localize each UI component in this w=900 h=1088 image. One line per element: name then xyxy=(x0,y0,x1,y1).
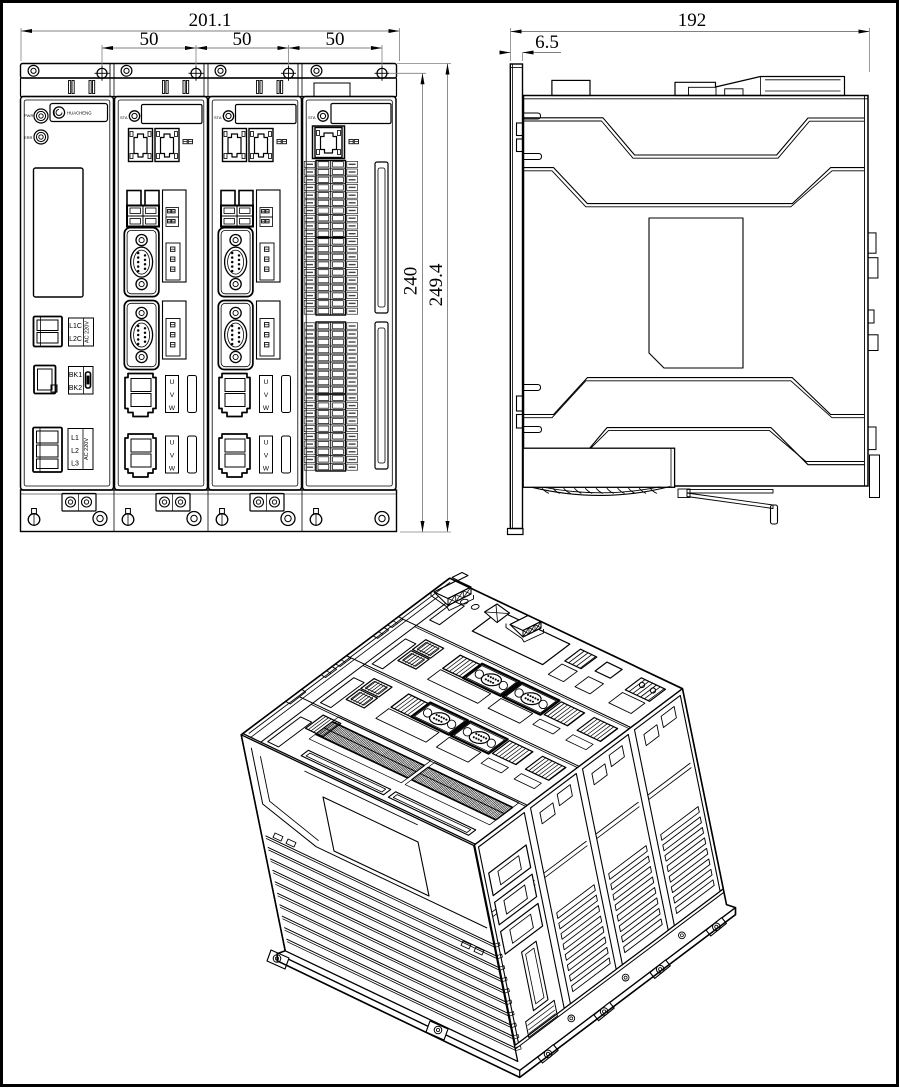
svg-text:W: W xyxy=(169,466,176,473)
svg-text:L1: L1 xyxy=(71,435,79,442)
svg-text:L1C: L1C xyxy=(69,323,82,330)
svg-text:6.5: 6.5 xyxy=(535,32,559,53)
svg-text:STA: STA xyxy=(120,115,128,120)
svg-text:U: U xyxy=(170,379,175,386)
svg-text:201.1: 201.1 xyxy=(189,10,232,31)
svg-text:249.4: 249.4 xyxy=(426,263,447,306)
svg-text:HUACHENG: HUACHENG xyxy=(67,111,92,116)
svg-text:L2: L2 xyxy=(71,448,79,455)
svg-text:W: W xyxy=(169,405,176,412)
svg-text:BK1: BK1 xyxy=(69,372,82,379)
svg-text:192: 192 xyxy=(678,10,707,31)
svg-text:W: W xyxy=(263,405,270,412)
svg-text:ERR: ERR xyxy=(24,135,33,140)
svg-text:BK2: BK2 xyxy=(69,385,82,392)
svg-text:W: W xyxy=(263,466,270,473)
svg-text:U: U xyxy=(264,379,269,386)
svg-text:STA: STA xyxy=(214,115,222,120)
svg-text:AC 220V: AC 220V xyxy=(85,321,91,343)
svg-text:V: V xyxy=(264,392,269,399)
svg-text:L2C: L2C xyxy=(69,336,82,343)
svg-text:U: U xyxy=(264,440,269,447)
svg-text:PWR: PWR xyxy=(24,113,33,118)
svg-text:V: V xyxy=(264,453,269,460)
svg-text:L3: L3 xyxy=(71,461,79,468)
svg-text:50: 50 xyxy=(233,29,252,50)
svg-text:V: V xyxy=(170,453,175,460)
svg-text:50: 50 xyxy=(140,29,159,50)
svg-text:STA: STA xyxy=(308,115,316,120)
svg-text:50: 50 xyxy=(326,29,345,50)
svg-text:V: V xyxy=(170,392,175,399)
svg-text:AC 220V: AC 220V xyxy=(84,438,90,460)
svg-text:U: U xyxy=(170,440,175,447)
svg-text:240: 240 xyxy=(401,267,422,296)
